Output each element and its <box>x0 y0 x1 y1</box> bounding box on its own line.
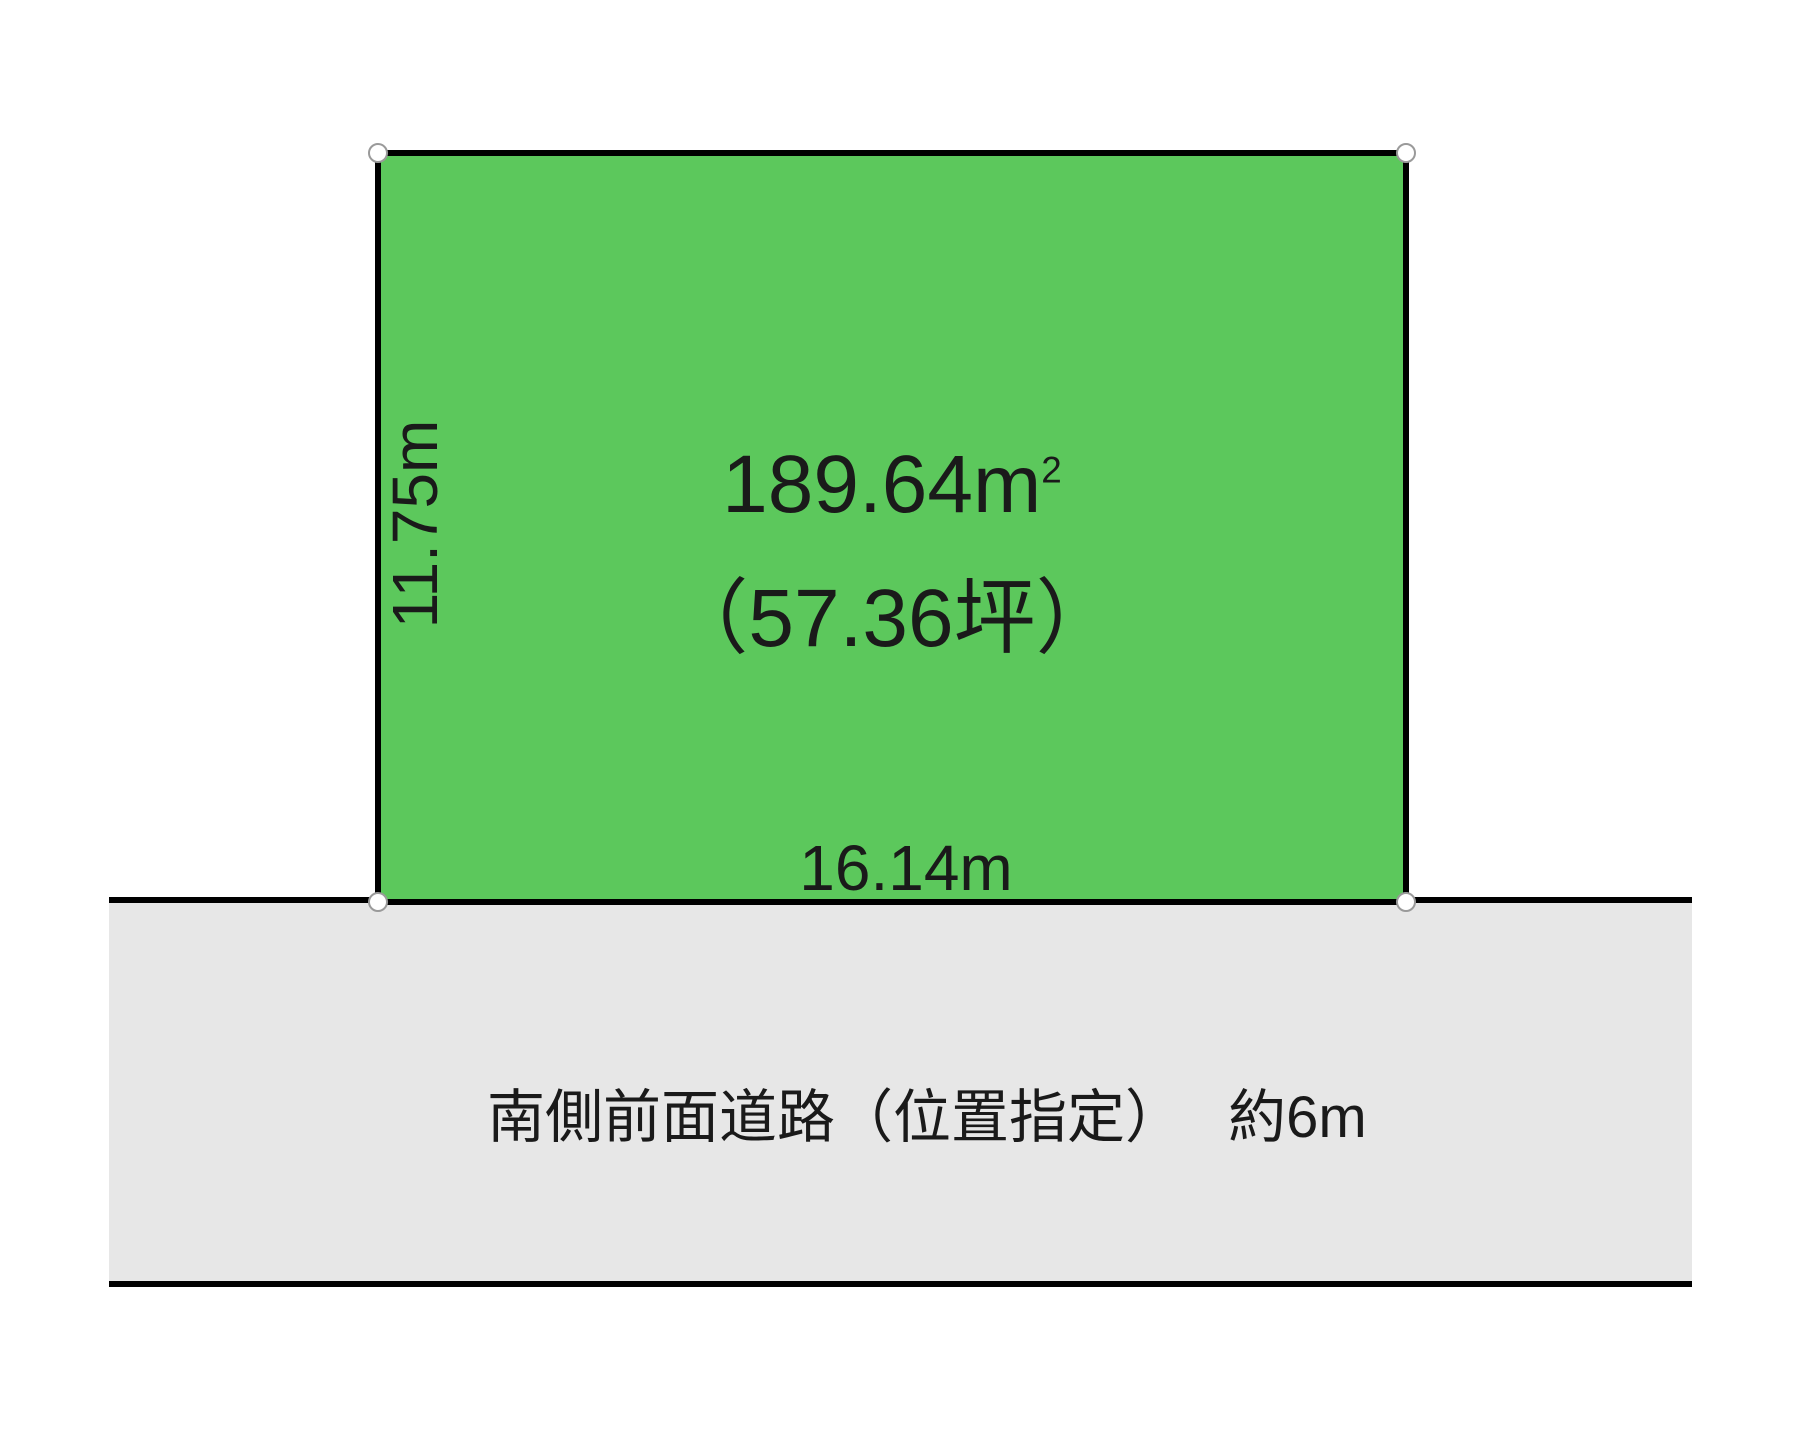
corner-marker-bottom-left <box>368 892 388 912</box>
corner-marker-top-right <box>1396 143 1416 163</box>
plot-area-sqm-superscript: 2 <box>1041 449 1062 490</box>
land-plot-diagram: 南側前面道路（位置指定） 約6m 189.64m2 （57.36坪） 11.75… <box>0 0 1800 1440</box>
plot-area-label: 189.64m2 （57.36坪） <box>375 418 1409 686</box>
plot-side-dimension-label: 11.75m <box>383 420 447 629</box>
road-label: 南側前面道路（位置指定） 約6m <box>487 1089 1367 1147</box>
road-area: 南側前面道路（位置指定） 約6m <box>109 897 1692 1287</box>
corner-marker-bottom-right <box>1396 892 1416 912</box>
corner-marker-top-left <box>368 143 388 163</box>
plot-area-sqm: 189.64m2 <box>375 418 1409 552</box>
plot-area-tsubo: （57.36坪） <box>375 552 1409 686</box>
plot-width-dimension-label: 16.14m <box>389 836 1423 900</box>
plot-area-sqm-value: 189.64m <box>722 439 1041 530</box>
